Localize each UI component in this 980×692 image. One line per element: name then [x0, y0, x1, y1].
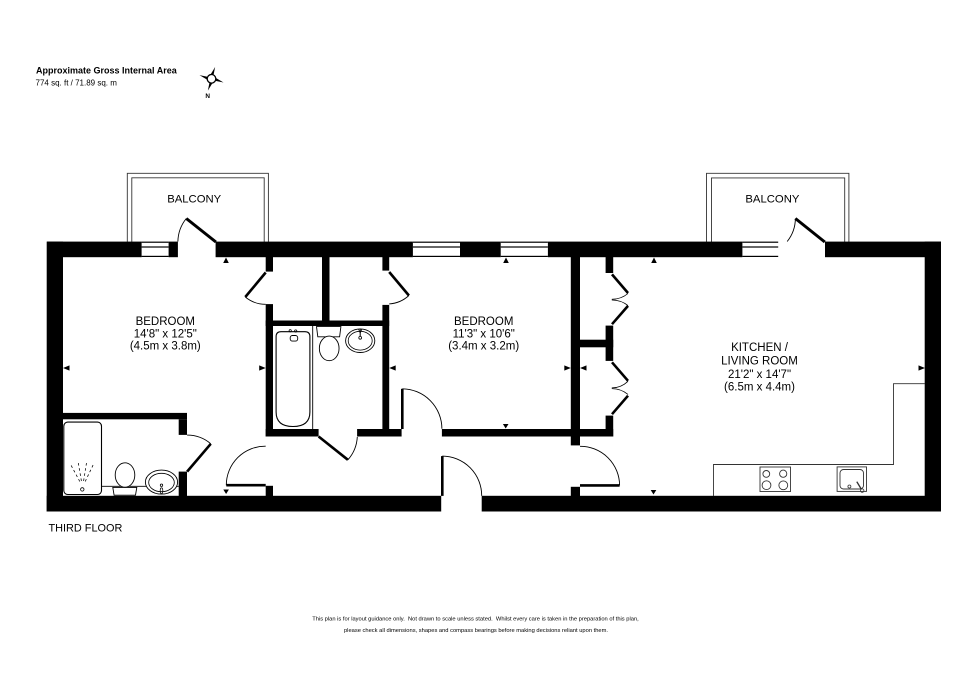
- svg-text:LIVING ROOM: LIVING ROOM: [721, 356, 798, 368]
- svg-text:11'3" x 10'6": 11'3" x 10'6": [453, 328, 515, 340]
- svg-text:(4.5m x 3.8m): (4.5m x 3.8m): [130, 341, 201, 353]
- svg-text:774 sq. ft / 71.89 sq. m: 774 sq. ft / 71.89 sq. m: [36, 79, 118, 88]
- svg-text:N: N: [205, 93, 210, 100]
- svg-text:This plan is for layout guidan: This plan is for layout guidance only. N…: [312, 617, 639, 623]
- svg-text:BEDROOM: BEDROOM: [454, 316, 513, 328]
- svg-text:Approximate Gross Internal Are: Approximate Gross Internal Area: [36, 65, 178, 75]
- svg-text:THIRD FLOOR: THIRD FLOOR: [49, 523, 123, 535]
- svg-text:please check all dimensions, s: please check all dimensions, shapes and …: [344, 628, 608, 634]
- svg-text:(3.4m x 3.2m): (3.4m x 3.2m): [448, 341, 519, 353]
- svg-text:BEDROOM: BEDROOM: [136, 316, 195, 328]
- svg-text:(6.5m x 4.4m): (6.5m x 4.4m): [724, 381, 795, 393]
- svg-text:21'2" x 14'7": 21'2" x 14'7": [728, 369, 791, 381]
- svg-text:14'8" x 12'5": 14'8" x 12'5": [134, 328, 197, 340]
- svg-text:KITCHEN /: KITCHEN /: [731, 342, 789, 354]
- svg-text:BALCONY: BALCONY: [745, 194, 799, 206]
- svg-text:BALCONY: BALCONY: [167, 194, 221, 206]
